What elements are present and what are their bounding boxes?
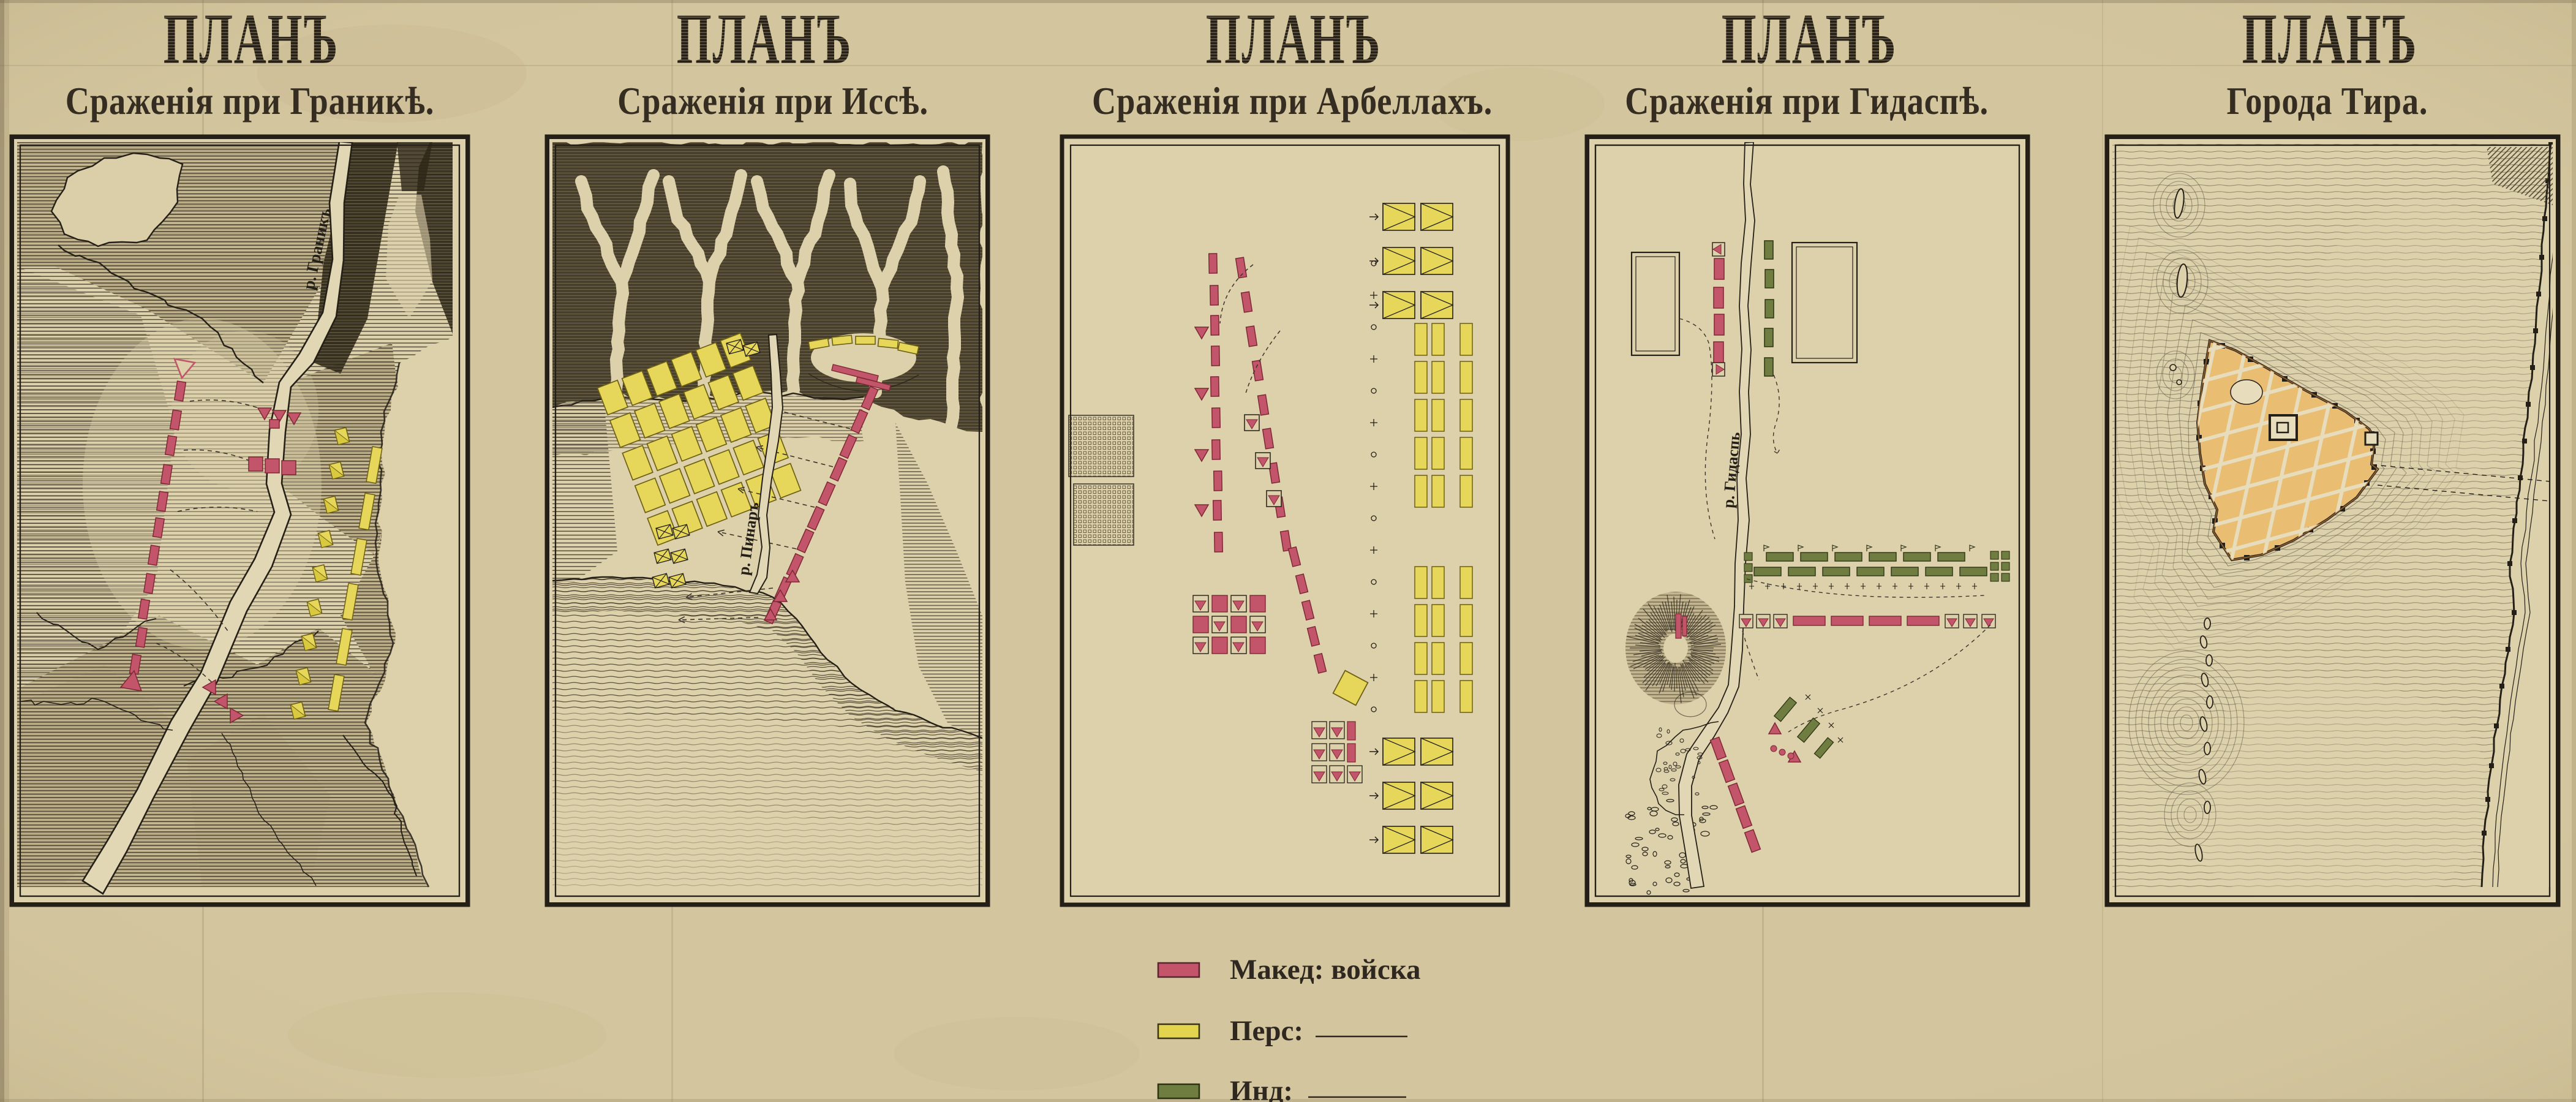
svg-text:Перс:: Перс: <box>1230 1015 1303 1047</box>
svg-text:Инд:: Инд: <box>1230 1075 1293 1102</box>
svg-text:Макед: войска: Макед: войска <box>1230 954 1421 986</box>
